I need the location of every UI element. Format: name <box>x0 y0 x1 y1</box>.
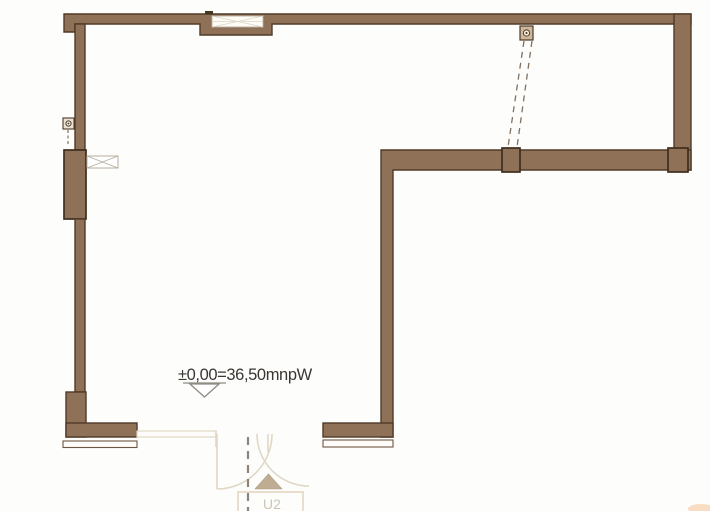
mid-wall-pier-right <box>668 148 688 172</box>
right-wall <box>674 14 691 170</box>
level-marker-triangle <box>190 384 219 397</box>
left-wall-pilaster <box>64 150 86 219</box>
threshold-left <box>63 441 137 448</box>
ceiling-fixture-dot <box>526 32 528 34</box>
door-tag-label: U2 <box>263 496 281 511</box>
bottom-wall-right <box>323 423 393 437</box>
mid-wall-and-lower-right-wall <box>381 150 691 437</box>
walls <box>63 11 691 448</box>
threshold-right <box>323 440 393 447</box>
left-wall-upper <box>75 24 85 150</box>
trace-dashed-line-1 <box>508 41 524 147</box>
installation-symbols <box>63 26 533 168</box>
left-wall-lower <box>75 219 85 392</box>
floor-plan-drawing: U2 ±0,00=36,50mnpW <box>0 0 710 511</box>
corner-smudge <box>688 504 710 511</box>
level-annotation: ±0,00=36,50mnpW <box>178 366 313 397</box>
door-sill-line <box>137 431 216 437</box>
floor-plan-canvas: U2 ±0,00=36,50mnpW <box>0 0 710 511</box>
left-wall-fixture-dot <box>68 123 70 125</box>
mid-wall-pier-left <box>502 148 520 172</box>
entrance-door: U2 <box>137 431 309 511</box>
level-annotation-text: ±0,00=36,50mnpW <box>178 366 313 384</box>
top-wall <box>64 14 691 35</box>
trace-dashed-line-2 <box>517 41 532 147</box>
top-wall-tick <box>205 11 213 15</box>
bottom-wall-left <box>66 423 137 437</box>
